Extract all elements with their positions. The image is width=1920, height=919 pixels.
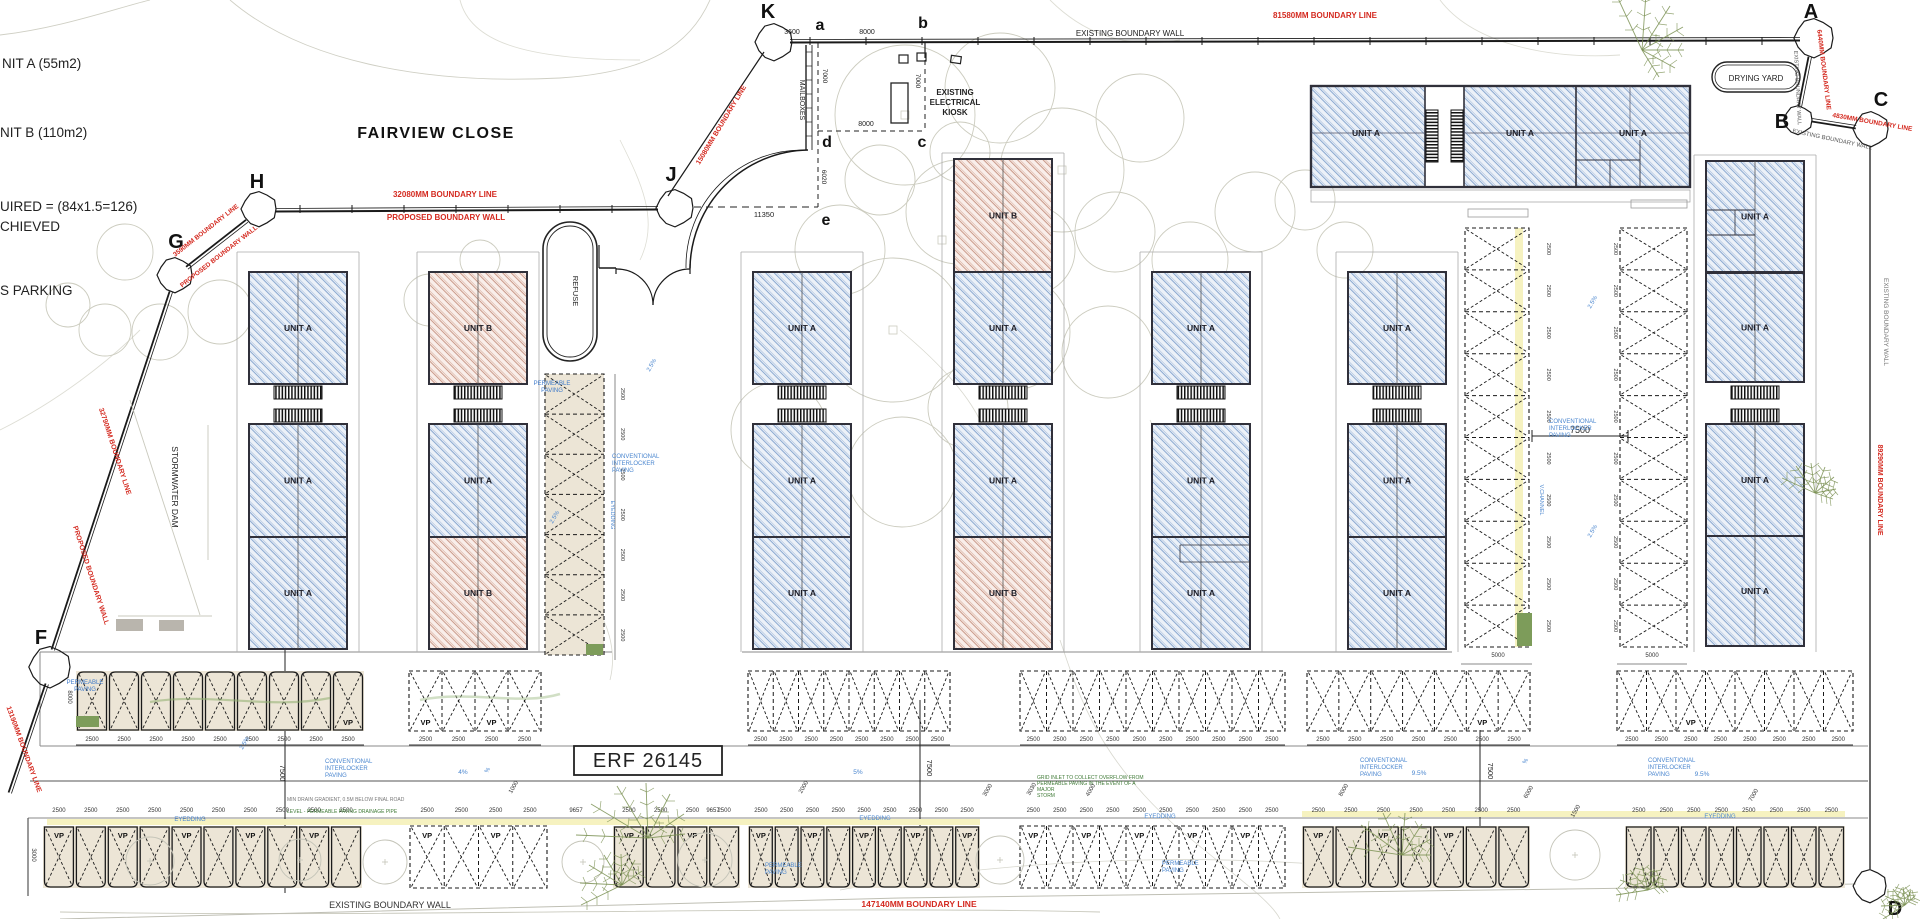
- svg-text:UNIT A: UNIT A: [1383, 323, 1411, 333]
- svg-text:CHIEVED: CHIEVED: [0, 219, 60, 234]
- svg-text:2500: 2500: [1632, 808, 1646, 814]
- svg-text:2500: 2500: [779, 737, 793, 743]
- svg-text:PAVING: PAVING: [325, 773, 347, 779]
- svg-text:MAILBOXES: MAILBOXES: [798, 80, 805, 121]
- svg-text:VP: VP: [1134, 831, 1144, 840]
- svg-text:2500: 2500: [804, 737, 818, 743]
- svg-text:7500: 7500: [1486, 763, 1495, 780]
- svg-text:9657: 9657: [706, 808, 720, 814]
- svg-text:2500: 2500: [180, 808, 194, 814]
- svg-text:VP: VP: [962, 831, 972, 840]
- svg-text:C: C: [1874, 89, 1888, 111]
- svg-text:2500: 2500: [1802, 737, 1816, 743]
- svg-text:2500: 2500: [1316, 737, 1330, 743]
- svg-text:81580MM BOUNDARY LINE: 81580MM BOUNDARY LINE: [1273, 11, 1378, 20]
- svg-text:UNIT A: UNIT A: [1187, 476, 1215, 486]
- svg-text:S PARKING: S PARKING: [0, 283, 73, 298]
- svg-text:2500: 2500: [1612, 620, 1618, 632]
- svg-text:UNIT B: UNIT B: [989, 588, 1017, 598]
- svg-text:2500: 2500: [309, 737, 323, 743]
- svg-text:VP: VP: [1444, 831, 1454, 840]
- svg-text:3000: 3000: [30, 848, 36, 862]
- svg-text:UIRED = (84x1.5=126): UIRED = (84x1.5=126): [0, 199, 137, 214]
- svg-text:EXISTING: EXISTING: [936, 88, 973, 97]
- svg-text:2500: 2500: [1476, 737, 1490, 743]
- svg-text:2500: 2500: [935, 808, 949, 814]
- svg-text:VP: VP: [1477, 718, 1487, 727]
- svg-text:CONVENTIONAL: CONVENTIONAL: [325, 759, 373, 765]
- svg-text:2500: 2500: [622, 808, 636, 814]
- svg-text:2500: 2500: [1743, 737, 1757, 743]
- svg-text:2500: 2500: [277, 737, 291, 743]
- svg-text:EYEDDING: EYEDDING: [859, 816, 891, 822]
- svg-text:2500: 2500: [1660, 808, 1674, 814]
- svg-text:9.5%: 9.5%: [1412, 770, 1427, 777]
- svg-text:2500: 2500: [754, 737, 768, 743]
- svg-text:2500: 2500: [1612, 452, 1618, 464]
- svg-text:2500: 2500: [1545, 494, 1551, 506]
- svg-text:NIT B (110m2): NIT B (110m2): [0, 125, 87, 140]
- svg-text:8000: 8000: [858, 121, 874, 128]
- svg-text:4%: 4%: [458, 769, 468, 776]
- svg-text:b: b: [918, 15, 928, 32]
- svg-text:2500: 2500: [1080, 808, 1094, 814]
- svg-text:EYEDDING: EYEDDING: [1144, 814, 1176, 820]
- svg-text:2500: 2500: [84, 808, 98, 814]
- svg-text:UNIT A: UNIT A: [1619, 128, 1647, 138]
- svg-text:2500: 2500: [1409, 808, 1423, 814]
- svg-text:UNIT A: UNIT A: [1187, 323, 1215, 333]
- svg-text:K: K: [761, 1, 776, 23]
- svg-text:VP: VP: [422, 831, 432, 840]
- svg-text:J: J: [665, 164, 676, 186]
- svg-text:EYEDDING: EYEDDING: [174, 817, 206, 823]
- svg-text:EXISTING BOUNDARY WALL: EXISTING BOUNDARY WALL: [329, 900, 451, 910]
- svg-text:UNIT B: UNIT B: [464, 588, 492, 598]
- svg-text:2500: 2500: [880, 737, 894, 743]
- svg-text:2500: 2500: [1545, 327, 1551, 339]
- svg-text:2500: 2500: [117, 737, 131, 743]
- svg-text:11350: 11350: [754, 210, 774, 219]
- svg-text:2500: 2500: [1545, 620, 1551, 632]
- svg-text:2500: 2500: [1186, 808, 1200, 814]
- svg-text:2500: 2500: [1742, 808, 1756, 814]
- svg-text:PERMEABLE: PERMEABLE: [534, 381, 571, 387]
- svg-text:VP: VP: [54, 831, 64, 840]
- svg-text:PERMEABLE: PERMEABLE: [67, 680, 104, 686]
- svg-text:UNIT B: UNIT B: [464, 323, 492, 333]
- svg-text:PROPOSED BOUNDARY WALL: PROPOSED BOUNDARY WALL: [387, 213, 505, 222]
- svg-text:2500: 2500: [1612, 536, 1618, 548]
- svg-text:2500: 2500: [1312, 808, 1326, 814]
- svg-text:2500: 2500: [1770, 808, 1784, 814]
- svg-text:INTERLOCKER: INTERLOCKER: [325, 766, 368, 772]
- svg-text:VP: VP: [1081, 831, 1091, 840]
- svg-text:INTERLOCKER: INTERLOCKER: [1549, 426, 1592, 432]
- svg-text:PAVING: PAVING: [612, 468, 634, 474]
- svg-text:2500: 2500: [1545, 578, 1551, 590]
- svg-text:2500: 2500: [489, 808, 503, 814]
- svg-text:VP: VP: [756, 831, 766, 840]
- svg-text:5000: 5000: [1491, 653, 1505, 659]
- svg-text:2500: 2500: [1212, 737, 1226, 743]
- svg-text:2500: 2500: [1825, 808, 1839, 814]
- svg-text:2500: 2500: [619, 549, 625, 561]
- svg-text:UNIT A: UNIT A: [788, 588, 816, 598]
- svg-text:2500: 2500: [213, 737, 227, 743]
- svg-text:UNIT A: UNIT A: [788, 323, 816, 333]
- svg-text:2500: 2500: [1545, 452, 1551, 464]
- svg-text:UNIT A: UNIT A: [1741, 323, 1769, 333]
- svg-text:UNIT A: UNIT A: [1187, 588, 1215, 598]
- svg-text:STORM: STORM: [1037, 793, 1055, 799]
- svg-text:2500: 2500: [485, 737, 499, 743]
- svg-text:c: c: [918, 134, 927, 151]
- svg-text:5%: 5%: [853, 769, 863, 776]
- svg-text:2500: 2500: [780, 808, 794, 814]
- svg-text:2500: 2500: [1545, 369, 1551, 381]
- svg-text:7000: 7000: [821, 69, 828, 84]
- svg-text:NIT A (55m2): NIT A (55m2): [2, 56, 81, 71]
- svg-text:2500: 2500: [1773, 737, 1787, 743]
- svg-text:UNIT A: UNIT A: [1352, 128, 1380, 138]
- svg-text:2500: 2500: [523, 808, 537, 814]
- svg-text:PAVING: PAVING: [541, 388, 563, 394]
- svg-text:7500: 7500: [925, 760, 934, 777]
- svg-text:PAVING: PAVING: [1360, 772, 1382, 778]
- svg-text:7500: 7500: [278, 765, 287, 782]
- svg-text:2500: 2500: [619, 388, 625, 400]
- svg-text:2500: 2500: [1265, 737, 1279, 743]
- svg-text:e: e: [822, 212, 831, 229]
- svg-text:2500: 2500: [619, 589, 625, 601]
- svg-text:2500: 2500: [1797, 808, 1811, 814]
- svg-text:a: a: [816, 17, 825, 34]
- svg-text:2500: 2500: [1239, 808, 1253, 814]
- svg-text:2500: 2500: [905, 737, 919, 743]
- svg-text:2500: 2500: [1159, 737, 1173, 743]
- svg-text:2500: 2500: [1053, 737, 1067, 743]
- svg-text:2500: 2500: [341, 737, 355, 743]
- svg-text:UNIT A: UNIT A: [464, 476, 492, 486]
- svg-text:2500: 2500: [1545, 536, 1551, 548]
- svg-text:2500: 2500: [1344, 808, 1358, 814]
- svg-text:MIN DRAIN GRADIENT, 0.5M BELOW: MIN DRAIN GRADIENT, 0.5M BELOW FINAL ROA…: [287, 797, 405, 803]
- svg-text:2500: 2500: [1714, 737, 1728, 743]
- svg-text:2500: 2500: [1348, 737, 1362, 743]
- svg-text:VP: VP: [309, 831, 319, 840]
- svg-text:VP: VP: [911, 831, 921, 840]
- svg-text:VP: VP: [859, 831, 869, 840]
- svg-text:PAVING: PAVING: [1549, 433, 1571, 439]
- svg-text:2500: 2500: [116, 808, 130, 814]
- svg-text:2500: 2500: [1507, 808, 1521, 814]
- svg-text:F: F: [35, 627, 47, 649]
- svg-text:2500: 2500: [855, 737, 869, 743]
- svg-text:2500: 2500: [419, 737, 433, 743]
- svg-text:2500: 2500: [85, 737, 99, 743]
- svg-text:d: d: [822, 134, 832, 151]
- svg-text:UNIT A: UNIT A: [1383, 588, 1411, 598]
- svg-text:V.CHANNEL: V.CHANNEL: [1538, 485, 1544, 516]
- svg-text:LEVEL - PERMEABLE PAVING DRAIN: LEVEL - PERMEABLE PAVING DRAINAGE PIPE: [287, 809, 398, 815]
- svg-text:UNIT A: UNIT A: [284, 588, 312, 598]
- svg-text:2500: 2500: [1687, 808, 1701, 814]
- svg-text:VP: VP: [624, 831, 634, 840]
- svg-text:2500: 2500: [832, 808, 846, 814]
- svg-text:2500: 2500: [909, 808, 923, 814]
- svg-text:VP: VP: [1187, 831, 1197, 840]
- svg-text:EXISTING BOUNDARY WALL: EXISTING BOUNDARY WALL: [1882, 278, 1889, 366]
- svg-text:89290MM BOUNDARY LINE: 89290MM BOUNDARY LINE: [1876, 444, 1883, 535]
- svg-text:6020: 6020: [820, 170, 827, 185]
- svg-text:CONVENTIONAL: CONVENTIONAL: [1648, 758, 1696, 764]
- svg-text:2500: 2500: [619, 509, 625, 521]
- svg-text:2500: 2500: [806, 808, 820, 814]
- svg-text:2500: 2500: [1442, 808, 1456, 814]
- svg-text:2500: 2500: [212, 808, 226, 814]
- svg-text:VP: VP: [343, 718, 353, 727]
- svg-text:VP: VP: [118, 831, 128, 840]
- svg-text:2500: 2500: [1377, 808, 1391, 814]
- svg-text:INTERLOCKER: INTERLOCKER: [1360, 765, 1403, 771]
- svg-text:2500: 2500: [619, 428, 625, 440]
- svg-text:2500: 2500: [420, 808, 434, 814]
- svg-text:2500: 2500: [1612, 327, 1618, 339]
- svg-text:8000: 8000: [66, 690, 72, 704]
- svg-text:INTERLOCKER: INTERLOCKER: [1648, 765, 1691, 771]
- svg-text:STORMWATER DAM: STORMWATER DAM: [170, 446, 180, 528]
- svg-text:2500: 2500: [518, 737, 532, 743]
- svg-text:2500: 2500: [754, 808, 768, 814]
- svg-text:CONVENTIONAL: CONVENTIONAL: [1549, 419, 1597, 425]
- svg-text:EXISTING BOUNDARY WALL: EXISTING BOUNDARY WALL: [1076, 29, 1185, 38]
- svg-text:2500: 2500: [1106, 808, 1120, 814]
- svg-text:DRYING YARD: DRYING YARD: [1729, 74, 1784, 83]
- svg-text:9.5%: 9.5%: [1695, 771, 1710, 778]
- svg-text:PAVING: PAVING: [765, 870, 787, 876]
- svg-text:8000: 8000: [859, 29, 875, 36]
- svg-text:ERF 26145: ERF 26145: [593, 750, 703, 772]
- svg-text:2500: 2500: [1186, 737, 1200, 743]
- svg-text:UNIT A: UNIT A: [989, 476, 1017, 486]
- svg-text:7000: 7000: [914, 74, 921, 89]
- svg-text:32080MM BOUNDARY LINE: 32080MM BOUNDARY LINE: [393, 190, 498, 199]
- svg-text:2500: 2500: [1212, 808, 1226, 814]
- svg-text:VP: VP: [1240, 831, 1250, 840]
- svg-text:2500: 2500: [1545, 285, 1551, 297]
- svg-text:2500: 2500: [1832, 737, 1846, 743]
- svg-text:UNIT A: UNIT A: [788, 476, 816, 486]
- svg-text:5000: 5000: [1645, 653, 1659, 659]
- svg-text:2500: 2500: [857, 808, 871, 814]
- svg-text:UNIT B: UNIT B: [989, 211, 1017, 221]
- svg-text:2500: 2500: [1027, 808, 1041, 814]
- svg-text:VP: VP: [491, 831, 501, 840]
- svg-text:147140MM BOUNDARY LINE: 147140MM BOUNDARY LINE: [861, 899, 977, 909]
- svg-text:2500: 2500: [1612, 285, 1618, 297]
- svg-text:2500: 2500: [1474, 808, 1488, 814]
- svg-text:UNIT A: UNIT A: [1741, 475, 1769, 485]
- svg-text:PERMEABLE: PERMEABLE: [1162, 861, 1199, 867]
- svg-text:UNIT A: UNIT A: [1383, 476, 1411, 486]
- svg-text:2500: 2500: [1684, 737, 1698, 743]
- svg-text:2500: 2500: [1239, 737, 1253, 743]
- svg-text:2500: 2500: [1612, 578, 1618, 590]
- svg-text:2500: 2500: [960, 808, 974, 814]
- svg-text:2500: 2500: [244, 808, 258, 814]
- svg-text:FAIRVIEW CLOSE: FAIRVIEW CLOSE: [357, 125, 515, 142]
- svg-text:VP: VP: [1028, 831, 1038, 840]
- svg-text:2500: 2500: [52, 808, 66, 814]
- svg-text:2500: 2500: [452, 737, 466, 743]
- svg-text:2500: 2500: [1507, 737, 1521, 743]
- svg-text:VP: VP: [1313, 831, 1323, 840]
- svg-text:UNIT A: UNIT A: [1506, 128, 1534, 138]
- svg-text:2500: 2500: [931, 737, 945, 743]
- svg-text:2500: 2500: [1612, 410, 1618, 422]
- svg-text:2500: 2500: [619, 629, 625, 641]
- svg-text:UNIT A: UNIT A: [284, 476, 312, 486]
- svg-text:INTERLOCKER: INTERLOCKER: [612, 461, 655, 467]
- svg-text:2500: 2500: [1027, 737, 1041, 743]
- svg-text:VP: VP: [245, 831, 255, 840]
- svg-text:ELECTRICAL: ELECTRICAL: [930, 98, 981, 107]
- svg-text:2500: 2500: [181, 737, 195, 743]
- svg-text:2500: 2500: [1612, 494, 1618, 506]
- svg-text:VP: VP: [486, 718, 496, 727]
- svg-text:VP: VP: [1686, 718, 1696, 727]
- svg-text:2500: 2500: [686, 808, 700, 814]
- svg-text:VP: VP: [807, 831, 817, 840]
- svg-text:2500: 2500: [1612, 369, 1618, 381]
- svg-text:9657: 9657: [569, 808, 583, 814]
- svg-text:UNIT A: UNIT A: [284, 323, 312, 333]
- svg-text:B: B: [1775, 111, 1789, 133]
- svg-text:VP: VP: [420, 718, 430, 727]
- svg-text:PAVING: PAVING: [1162, 868, 1184, 874]
- svg-text:UNIT A: UNIT A: [989, 323, 1017, 333]
- svg-text:2500: 2500: [1053, 808, 1067, 814]
- svg-text:2500: 2500: [1444, 737, 1458, 743]
- svg-text:2500: 2500: [1612, 243, 1618, 255]
- svg-text:2500: 2500: [1265, 808, 1279, 814]
- svg-text:CONVENTIONAL: CONVENTIONAL: [612, 454, 660, 460]
- svg-text:REFUSE: REFUSE: [571, 276, 580, 306]
- svg-text:2500: 2500: [1655, 737, 1669, 743]
- svg-text:A: A: [1804, 1, 1818, 23]
- svg-text:2500: 2500: [455, 808, 469, 814]
- svg-text:CONVENTIONAL: CONVENTIONAL: [1360, 758, 1408, 764]
- svg-text:2500: 2500: [149, 737, 163, 743]
- svg-text:2500: 2500: [1625, 737, 1639, 743]
- svg-text:PAVING: PAVING: [1648, 772, 1670, 778]
- svg-text:2500: 2500: [1080, 737, 1094, 743]
- svg-text:UNIT A: UNIT A: [1741, 586, 1769, 596]
- svg-text:H: H: [250, 171, 264, 193]
- svg-text:KIOSK: KIOSK: [942, 108, 968, 117]
- svg-text:EYEDDING: EYEDDING: [1704, 814, 1736, 820]
- svg-text:2500: 2500: [148, 808, 162, 814]
- svg-text:2500: 2500: [1133, 737, 1147, 743]
- svg-text:2500: 2500: [1380, 737, 1394, 743]
- svg-text:PERMEABLE: PERMEABLE: [765, 863, 802, 869]
- svg-text:2500: 2500: [830, 737, 844, 743]
- svg-text:2500: 2500: [1106, 737, 1120, 743]
- svg-text:3600: 3600: [784, 29, 800, 36]
- svg-text:PAVING: PAVING: [74, 687, 96, 693]
- svg-text:EYEDDING: EYEDDING: [609, 501, 615, 530]
- svg-text:VP: VP: [182, 831, 192, 840]
- svg-text:UNIT A: UNIT A: [1741, 212, 1769, 222]
- svg-text:2500: 2500: [1545, 243, 1551, 255]
- svg-text:2500: 2500: [883, 808, 897, 814]
- svg-text:2500: 2500: [1412, 737, 1426, 743]
